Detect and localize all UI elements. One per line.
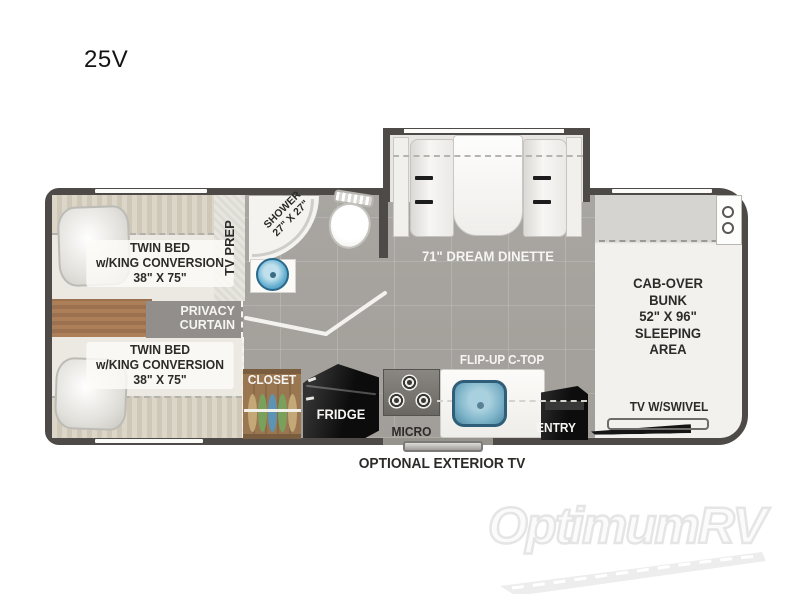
seat-belt-icon [415, 200, 433, 204]
seat-belt-icon [533, 200, 551, 204]
rv-floorplan-image: 25V TWIN BED w/KING CONVERSION 38" X 75"… [0, 0, 800, 600]
hanger-icon [278, 394, 287, 432]
hanger-icon [288, 394, 297, 432]
burner-icon [388, 392, 405, 409]
bath-sink-icon [256, 258, 289, 291]
window-strip [95, 189, 207, 193]
cab-detail-circle [722, 206, 734, 218]
toilet-bowl [325, 200, 374, 252]
dinette-label: 71" DREAM DINETTE [393, 249, 583, 265]
kitchen-sink-icon [452, 380, 507, 427]
exterior-tv-shape [403, 441, 483, 452]
tv-prep-label: TV PREP [205, 202, 255, 294]
watermark-logo: OptimumRV [488, 496, 790, 596]
dinette-backrest [393, 137, 409, 237]
dinette-dashed-line [393, 155, 583, 157]
hanger-icon [258, 394, 267, 432]
tv-swivel-label: TV W/SWIVEL [611, 400, 727, 415]
closet-hangers-icon [247, 392, 299, 434]
cab-over-bunk-label: CAB-OVER BUNK 52" X 96" SLEEPING AREA [600, 276, 736, 359]
exterior-tv-label: OPTIONAL EXTERIOR TV [349, 456, 535, 473]
hanger-icon [268, 394, 277, 432]
closet-label: CLOSET [245, 372, 298, 387]
dinette-bench-right [523, 139, 567, 237]
stove-burners-icon [383, 369, 440, 416]
flip-up-ctop-label: FLIP-UP C-TOP [450, 353, 554, 368]
window-strip [404, 129, 564, 133]
entry-label: ENTRY [530, 421, 581, 436]
burner-icon [415, 392, 432, 409]
seat-belt-icon [533, 176, 551, 180]
cab-corner-panel [716, 195, 742, 245]
fridge-label: FRIDGE [306, 406, 376, 423]
micro-label: MICRO [385, 424, 437, 439]
privacy-curtain-label: PRIVACY CURTAIN [146, 301, 243, 338]
dinette-table [453, 135, 523, 236]
burner-icon [401, 374, 418, 391]
closet-rod [244, 409, 301, 412]
cab-detail-circle [722, 222, 734, 234]
nightstand-wood [52, 299, 152, 337]
window-strip [612, 189, 712, 193]
model-title: 25V [84, 46, 128, 74]
dinette-bench-left [410, 139, 454, 237]
seat-belt-icon [415, 176, 433, 180]
dinette-backrest [566, 137, 582, 237]
hanger-icon [248, 394, 257, 432]
tv-swivel-shape [607, 418, 709, 430]
road-graphic [494, 546, 774, 594]
twin-bed-bottom-label: TWIN BED w/KING CONVERSION 38" X 75" [86, 342, 233, 389]
toilet-icon [322, 189, 379, 258]
window-strip [95, 439, 203, 443]
